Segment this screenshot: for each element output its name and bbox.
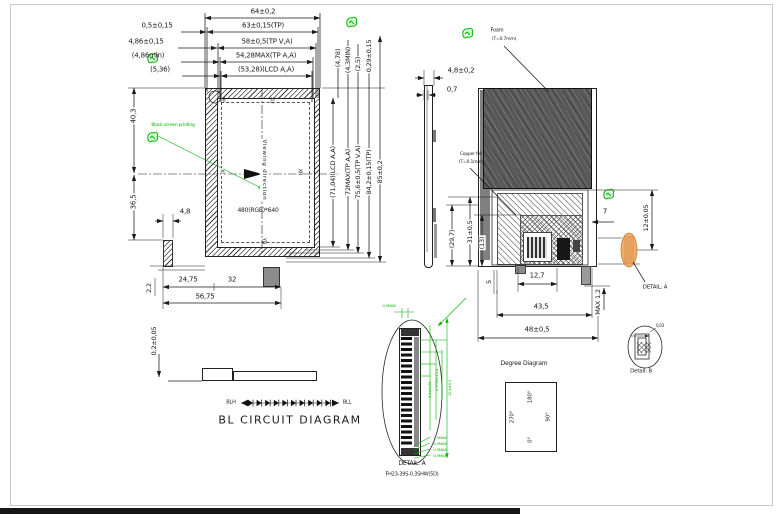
bl-circuit-title: BL CIRCUIT DIAGRAM — [218, 415, 361, 426]
detail-a-pin-comb — [401, 337, 412, 447]
detail-b-marker: B — [222, 99, 225, 104]
dim-overall-height: 85±0,2 — [377, 160, 384, 185]
back-view-ic — [527, 237, 547, 258]
dim-435: 43,5 — [533, 304, 550, 311]
side-view-fpc-strip — [434, 224, 437, 258]
copper-thickness-label: (T=0.1mm) — [459, 161, 483, 166]
detail-a-pin-dim-1: 0,3MAX — [433, 436, 446, 440]
dim-glass-thickness: 0,7 — [447, 87, 458, 94]
dim-left-border: 4,86±0,15 — [128, 39, 163, 46]
viewing-direction-label: Viewing direction — [260, 138, 266, 201]
detail-b-title: Detail: B — [630, 369, 652, 375]
dim-tp-width: 63±0,15(TP) — [242, 23, 284, 30]
dim-top-478: (4,78) — [335, 49, 342, 67]
dim-left-border-min: (4,86min) — [132, 53, 164, 60]
dim-max12: MAX 1,2 — [595, 288, 602, 316]
bl-anode-label: BLH — [226, 401, 235, 406]
dim-lcd-aa-height: (71,04)(LCD A,A) — [330, 145, 337, 199]
resolution-label: 480(RGB)*640 — [237, 208, 278, 214]
side-view-bump-bottom — [433, 208, 436, 222]
dim-top-029: 0,29±0,15 — [366, 39, 373, 74]
side-view-profile — [424, 85, 433, 268]
bl-profile-block-right — [233, 371, 317, 381]
dim-top-43min: (4,3MIN) — [345, 46, 352, 74]
dim-aa-width: 54,28MAX(TP A,A) — [236, 53, 296, 60]
back-view-tab-right — [581, 266, 591, 285]
detail-a-pin-dim-2: 0,3MAX — [433, 442, 446, 446]
detail-a-title: DETAIL: A — [398, 461, 425, 467]
dim-5: 5 — [486, 280, 493, 284]
dim-top-25: (2,5) — [355, 56, 362, 72]
screen-label-yd: YD — [261, 238, 266, 245]
detail-a-side-dim-3: 12,4±0,1 — [448, 380, 452, 396]
dim-31: 31±0,5 — [467, 220, 474, 245]
detail-a-pin-dim-3: 0,3MAX — [433, 448, 446, 452]
dim-left-lcd-border: (5,36) — [150, 67, 170, 74]
dim-297: (29,7) — [449, 229, 456, 249]
detail-a-side-dim-1: 0,3±0,03 — [428, 382, 432, 398]
back-view-component-black — [557, 238, 570, 260]
detail-a-side-dim-2: 0,3*38=11,4 — [435, 369, 439, 391]
dim-overall-width: 64±0,2 — [251, 9, 276, 16]
detail-a-reference: DETAIL: A — [643, 285, 668, 291]
foam-thickness-label: (T=0.7mm) — [492, 38, 516, 43]
dim-7: 7 — [603, 209, 607, 216]
degree-90: 90° — [546, 412, 552, 421]
screen-label-xr: XR — [297, 168, 302, 177]
drawing-sheet: 64±0,2 63±0,15(TP) 58±0,5(TP V,A) 54,28M… — [0, 0, 784, 519]
degree-270: 270° — [510, 411, 516, 423]
detail-a-top-dim: 0,3MAX — [382, 304, 395, 308]
front-view-side-fpc — [163, 240, 173, 267]
bl-profile-block-left — [202, 368, 233, 381]
dim-12: 12±0,05 — [643, 204, 650, 233]
back-view-output-connector — [624, 236, 634, 264]
dim-upper-left: 40,3 — [131, 108, 138, 125]
detail-a-cap-top — [401, 329, 419, 336]
dim-aa-height: 72MAX(TP A,A) — [345, 148, 352, 196]
back-view-tab-left — [515, 265, 526, 274]
dim-edge-offset: 0,5±0,15 — [142, 23, 173, 30]
detail-a-side-rail — [414, 337, 419, 447]
degree-diagram-title: Degree Diagram — [501, 361, 548, 367]
black-screen-printing-note: Black screen printing — [151, 124, 194, 129]
dim-lcd-aa-width: (53,28)(LCD A,A) — [238, 67, 294, 74]
dim-bl-thickness: 0,2±0,05 — [151, 327, 158, 356]
dim-127: 12,7 — [529, 273, 546, 280]
foam-block — [483, 88, 592, 189]
detail-a-pin-dim-4: 0,3MAX — [433, 454, 446, 458]
detail-a-part-number: FH23-39S-0.3SHW(5D) — [385, 473, 438, 478]
side-view-bump-top — [433, 130, 436, 142]
dim-48: 48±0,5 — [524, 327, 551, 334]
degree-0: 0° — [528, 437, 534, 443]
dim-tail-offset: 2,2 — [146, 283, 153, 293]
front-view-fpc-tail — [263, 267, 280, 287]
copper-foil-label: Copper foil — [460, 153, 482, 158]
back-view-component-small — [573, 240, 580, 252]
bottom-dark-strip — [0, 508, 520, 514]
dim-side-thickness: 4,8±0,2 — [448, 68, 475, 75]
dim-side-fpc-width: 4,8 — [180, 209, 191, 216]
sheet-border-frame — [10, 4, 773, 506]
screen-label-xl: XL — [219, 168, 224, 176]
degree-180: 180° — [528, 391, 534, 403]
dim-5675: 56,75 — [194, 294, 215, 301]
screen-label-xu: XU — [269, 97, 274, 104]
detail-b-hatch — [637, 342, 651, 353]
detail-b-dim: 0,03 — [656, 324, 664, 328]
bl-cathode-label: BLL — [343, 401, 351, 406]
dim-va-height: 75,6±0,5(TP V,A) — [355, 144, 362, 199]
dim-va-width: 58±0,5(TP V,A) — [241, 39, 292, 46]
dim-tp-height: 84,2±0,15(TP) — [366, 149, 373, 196]
dim-32: 32 — [227, 277, 238, 284]
detail-a-cap-bottom — [401, 448, 419, 455]
dim-2475: 24,75 — [177, 277, 198, 284]
dim-lower-left: 36,5 — [131, 194, 138, 211]
dim-13: (13) — [479, 236, 486, 251]
foam-label: Foam — [491, 29, 504, 34]
